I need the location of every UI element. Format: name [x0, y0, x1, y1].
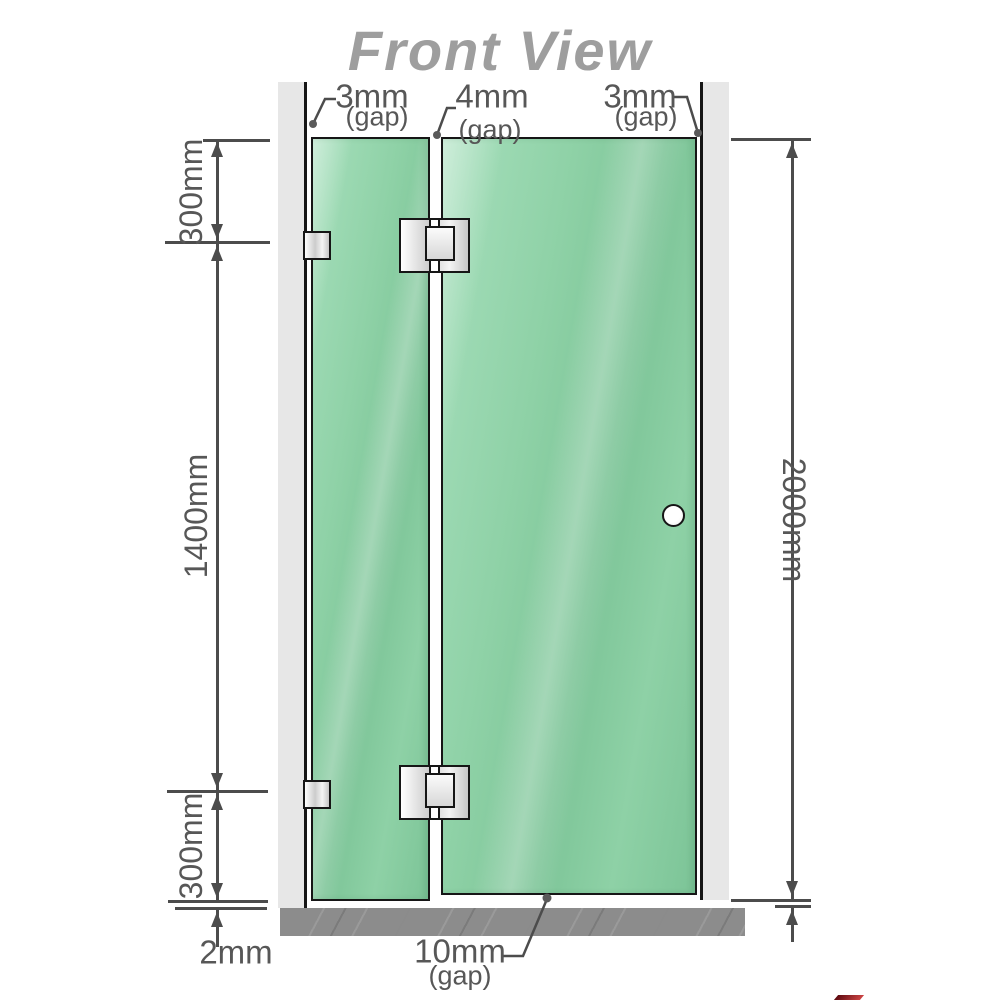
arrow-icon	[786, 910, 798, 925]
gap-right-note: (gap)	[614, 104, 677, 131]
dim-label-total-2000: 2000mm	[778, 458, 810, 583]
arrow-icon	[211, 883, 223, 898]
left-tick-floor	[175, 907, 267, 910]
gap-bottom-note: (gap)	[428, 963, 491, 990]
shower-screen-front-view-diagram: Front View	[0, 0, 1000, 1000]
arrow-icon	[786, 881, 798, 896]
floor-base	[280, 908, 745, 936]
arrow-icon	[211, 912, 223, 927]
hinge-bottom-knuckle	[425, 773, 455, 808]
wall-bracket-bottom	[303, 780, 331, 809]
right-tick-floor	[775, 905, 811, 908]
page-title: Front View	[0, 18, 1000, 83]
gap-left-note: (gap)	[345, 104, 408, 131]
right-wall-channel	[703, 82, 729, 900]
dim-label-bottom-300: 300mm	[175, 793, 207, 900]
arrow-icon	[211, 224, 223, 239]
left-tick-glass-bottom	[168, 900, 268, 903]
dim-label-middle-1400: 1400mm	[180, 454, 212, 579]
gap-middle-note: (gap)	[458, 117, 521, 144]
gap-middle-value: 4mm	[455, 80, 528, 113]
hinge-top-knuckle	[425, 226, 455, 261]
logo-fragment	[834, 995, 864, 1000]
dim-label-top-300: 300mm	[175, 139, 207, 246]
door-knob	[662, 504, 685, 527]
left-wall-channel	[278, 82, 304, 908]
arrow-icon	[786, 143, 798, 158]
hinge-bottom	[399, 765, 470, 820]
door-glass-panel	[441, 137, 697, 895]
leader-gap-left	[313, 99, 336, 124]
leader-dot	[433, 131, 441, 139]
arrow-icon	[211, 795, 223, 810]
right-tick-bottom	[731, 899, 811, 902]
arrow-icon	[211, 246, 223, 261]
wall-bracket-top	[303, 231, 331, 260]
leader-dot	[309, 120, 317, 128]
leader-gap-middle	[437, 108, 456, 135]
arrow-icon	[211, 773, 223, 788]
dim-label-floor-2mm: 2mm	[199, 936, 272, 969]
hinge-top	[399, 218, 470, 273]
right-tick-top	[731, 138, 811, 141]
arrow-icon	[211, 142, 223, 157]
